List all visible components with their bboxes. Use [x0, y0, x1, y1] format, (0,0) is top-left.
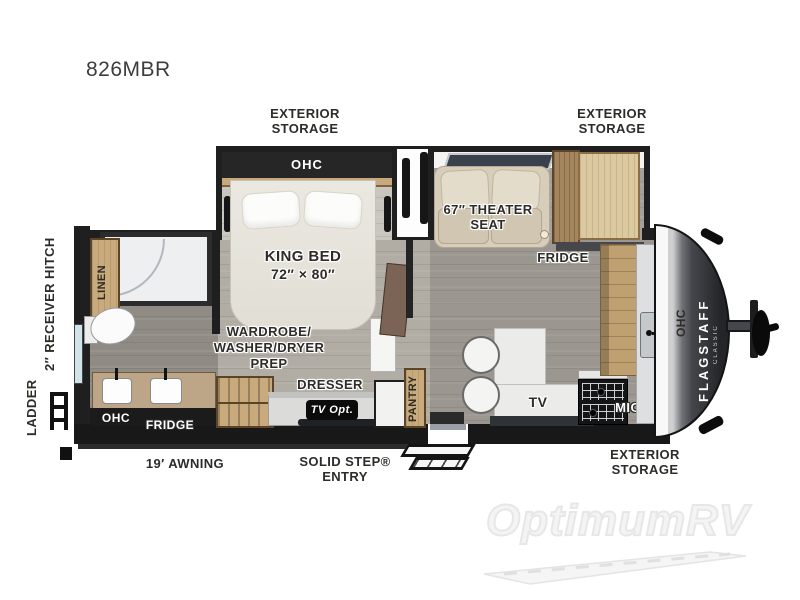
- faucet: [115, 368, 118, 380]
- entry-step: [408, 457, 470, 470]
- burner-knob: [589, 409, 597, 417]
- brand-sub-label: CLASSIC: [713, 300, 719, 364]
- awning-label: 19′ AWNING: [118, 456, 252, 471]
- watermark-road-icon: [478, 540, 778, 586]
- pantry-label: PANTRY: [407, 372, 420, 426]
- exterior-storage-label-bottom: EXTERIOR STORAGE: [583, 447, 707, 478]
- tv-opt-label: TV Opt.: [306, 404, 358, 416]
- bedroom-window-right: [384, 196, 391, 232]
- vanity-sink: [150, 378, 182, 404]
- linen-label: LINEN: [96, 248, 109, 318]
- receiver-hitch-label: 2″ RECEIVER HITCH: [42, 228, 57, 380]
- cap-trim-top: [699, 227, 724, 246]
- cap-trim-bottom: [697, 414, 725, 435]
- door-wall-strip: [406, 240, 413, 318]
- rear-fridge-label: FRIDGE: [138, 419, 202, 432]
- hitch-handle: [765, 323, 779, 333]
- pillow: [303, 190, 363, 230]
- theater-seat-label: 67″ THEATER SEAT: [428, 202, 548, 233]
- watermark: OptimumRV: [478, 496, 788, 586]
- tv-opt-chip: TV Opt.: [306, 400, 358, 420]
- fridge-label: FRIDGE: [528, 250, 598, 265]
- exterior-storage-label-living: EXTERIOR STORAGE: [550, 106, 674, 137]
- front-cap-ohc-label: OHC: [674, 292, 688, 354]
- dresser-label: DRESSER: [288, 377, 372, 392]
- bedroom-ohc-label: OHC: [270, 158, 344, 172]
- ladder-icon: [50, 392, 68, 430]
- pillow: [241, 190, 301, 230]
- wardrobe-cabinet: [216, 376, 274, 428]
- rear-window: [74, 324, 83, 384]
- pantry-cabinet: [374, 380, 406, 428]
- rear-ohc-label: OHC: [96, 412, 136, 425]
- window-slot: [420, 152, 428, 224]
- brand-label: FLAGSTAFF: [696, 262, 711, 402]
- king-bed-label: KING BED 72″ × 80″: [240, 248, 366, 282]
- bar-stool: [462, 336, 500, 374]
- window-slot: [402, 158, 410, 218]
- bath-bedroom-wall: [212, 238, 220, 334]
- kitchen-tall-cabinet: [600, 244, 638, 376]
- tv-label: TV: [516, 394, 560, 411]
- bar-stool: [462, 376, 500, 414]
- solid-step-entry-label: SOLID STEP® ENTRY: [283, 454, 407, 485]
- watermark-text: OptimumRV: [486, 496, 749, 546]
- vanity-sink: [102, 378, 132, 404]
- burner-knob: [597, 388, 605, 396]
- hitch-jack-wheel: [752, 310, 770, 356]
- faucet: [164, 368, 167, 380]
- fridge-cabinet-front: [578, 152, 640, 240]
- fridge-cabinet-side: [552, 150, 580, 244]
- awning-rail: [78, 444, 410, 449]
- exterior-storage-label-bedroom: EXTERIOR STORAGE: [243, 106, 367, 137]
- entry-threshold: [430, 424, 466, 430]
- entry-step: [400, 444, 476, 457]
- awning-arm: [60, 447, 72, 460]
- entry-mat: [430, 412, 464, 424]
- model-number: 826MBR: [86, 58, 171, 82]
- wardrobe-shelf-line: [218, 402, 272, 404]
- wardrobe-prep-label: WARDROBE/ WASHER/DRYER PREP: [195, 324, 343, 372]
- ladder-label: LADDER: [24, 372, 39, 444]
- floorplan-canvas: OptimumRV 826MBR EXTERIOR STORAGE EXTERI…: [0, 0, 800, 600]
